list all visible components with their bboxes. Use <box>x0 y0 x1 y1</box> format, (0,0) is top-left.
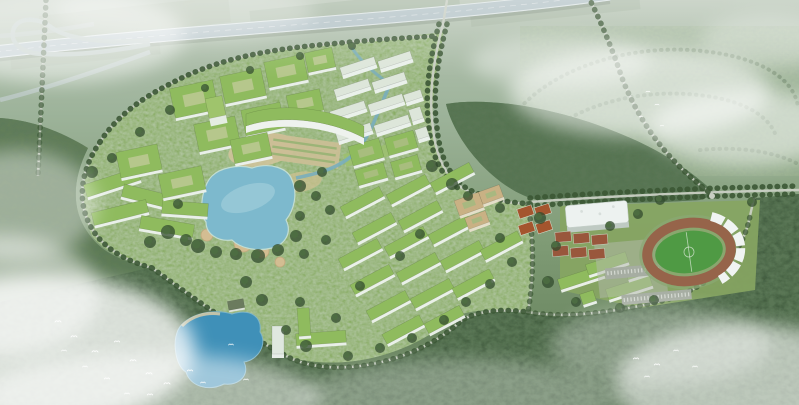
tree-clump-highlight <box>145 237 152 244</box>
tree-clump-highlight <box>174 200 180 206</box>
tree-clump-highlight <box>296 298 302 304</box>
tree-clump-highlight <box>396 252 402 258</box>
tree-clump-highlight <box>356 282 362 288</box>
rendering-canvas <box>0 0 799 405</box>
tree-clump-highlight <box>231 249 238 256</box>
tree-clump-highlight <box>650 296 656 302</box>
building-roof <box>297 308 311 337</box>
tree-clump-highlight <box>282 326 288 332</box>
sport-court <box>570 247 587 258</box>
plaza-circle <box>275 257 285 267</box>
tree-clump-highlight <box>257 295 264 302</box>
tree-clump-highlight <box>447 179 454 186</box>
tree-clump-highlight <box>572 298 578 304</box>
tree-clump-highlight <box>273 245 280 252</box>
tree-clump-highlight <box>462 298 468 304</box>
tree-clump-highlight <box>87 167 94 174</box>
tree-clump-highlight <box>296 212 302 218</box>
tree-clump-highlight <box>241 277 248 284</box>
tree-clump-highlight <box>291 231 298 238</box>
road-junction <box>709 193 715 199</box>
tree-clump-highlight <box>181 235 188 242</box>
tree-clump-highlight <box>634 210 640 216</box>
tree-clump-highlight <box>322 236 328 242</box>
building <box>161 200 208 219</box>
sport-court <box>555 231 572 242</box>
sport-court <box>573 233 590 244</box>
tree-clump-highlight <box>535 213 542 220</box>
tree-clump-highlight <box>427 161 434 168</box>
tree-clump-highlight <box>496 234 502 240</box>
tree-clump-highlight <box>252 250 260 258</box>
tree-clump-highlight <box>166 106 172 112</box>
tree-clump-highlight <box>162 226 170 234</box>
tree-clump-highlight <box>376 344 382 350</box>
tree-clump-highlight <box>108 154 114 160</box>
tree-clump-highlight <box>295 181 302 188</box>
tree-clump-highlight <box>312 192 318 198</box>
tree-clump-highlight <box>440 316 446 322</box>
tree-clump-highlight <box>192 240 200 248</box>
tree-clump-highlight <box>496 204 502 210</box>
tree-clump-highlight <box>552 242 558 248</box>
gymnasium <box>565 200 629 232</box>
tree-clump-highlight <box>301 341 308 348</box>
tree-clump-highlight <box>300 250 306 256</box>
tree-clump-highlight <box>211 247 218 254</box>
tree-clump-highlight <box>543 277 550 284</box>
sport-court <box>588 248 605 259</box>
atmospheric-haze <box>0 0 799 78</box>
building <box>297 308 311 340</box>
tree-clump-highlight <box>508 258 514 264</box>
tree-clump-highlight <box>332 314 338 320</box>
tree-clump-highlight <box>318 168 324 174</box>
tree-clump-highlight <box>136 128 142 134</box>
aerial-campus-rendering <box>0 0 799 405</box>
tree-clump-highlight <box>326 206 332 212</box>
sport-court <box>591 234 608 245</box>
tree-clump-highlight <box>344 352 350 358</box>
tree-clump-highlight <box>486 280 492 286</box>
tree-clump-highlight <box>464 192 470 198</box>
tree-clump-highlight <box>202 85 207 90</box>
tree-clump-highlight <box>748 198 754 204</box>
tree-clump-highlight <box>408 334 414 340</box>
tree-clump-highlight <box>606 222 612 228</box>
tree-clump-highlight <box>416 230 422 236</box>
tree-clump-highlight <box>656 196 662 202</box>
